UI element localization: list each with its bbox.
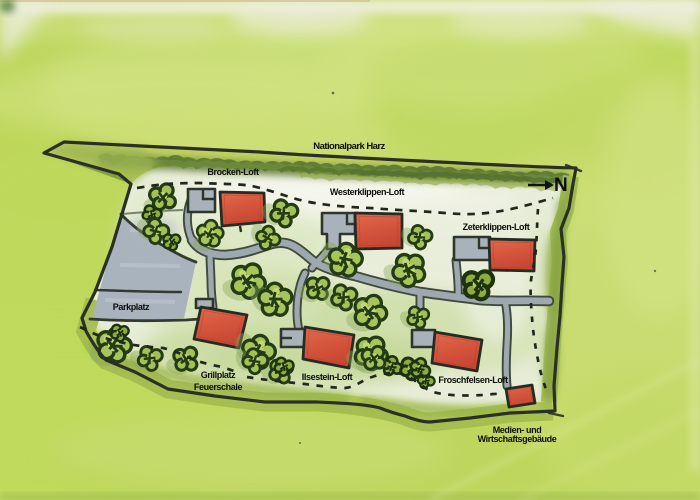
svg-text:Feuerschale: Feuerschale (194, 382, 243, 392)
svg-text:Froschfelsen-Loft: Froschfelsen-Loft (438, 375, 508, 385)
svg-text:Wirtschaftsgebäude: Wirtschaftsgebäude (478, 434, 557, 444)
svg-text:Grillplatz: Grillplatz (201, 370, 236, 380)
svg-text:Nationalpark Harz: Nationalpark Harz (313, 141, 385, 152)
svg-text:Westerklippen-Loft: Westerklippen-Loft (330, 187, 405, 197)
svg-text:Brocken-Loft: Brocken-Loft (207, 167, 259, 177)
svg-text:Parkplatz: Parkplatz (113, 302, 150, 312)
svg-text:Zeterklippen-Loft: Zeterklippen-Loft (463, 222, 530, 232)
svg-text:Ilsestein-Loft: Ilsestein-Loft (302, 372, 353, 382)
svg-text:N: N (554, 175, 568, 196)
